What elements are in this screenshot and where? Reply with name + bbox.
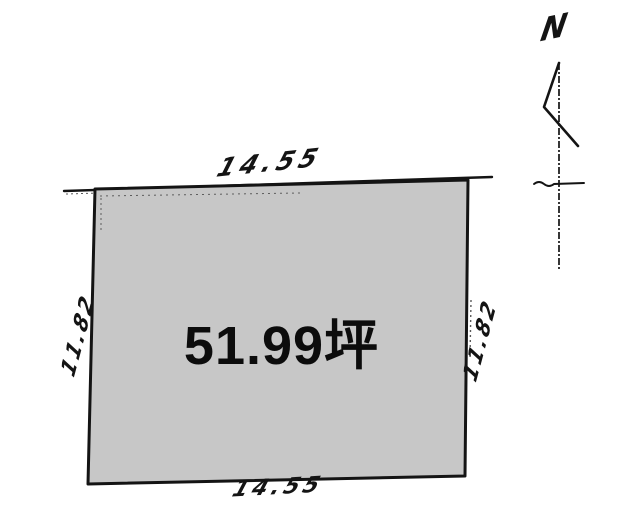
- site-plan: 51.99坪 14.55 14.55 11.82 11.82 N: [0, 0, 617, 521]
- north-arrow: [534, 63, 584, 270]
- plan-drawing: [0, 0, 617, 521]
- north-arrow-needle: [544, 63, 578, 146]
- parcel-area-label: 51.99坪: [95, 301, 468, 380]
